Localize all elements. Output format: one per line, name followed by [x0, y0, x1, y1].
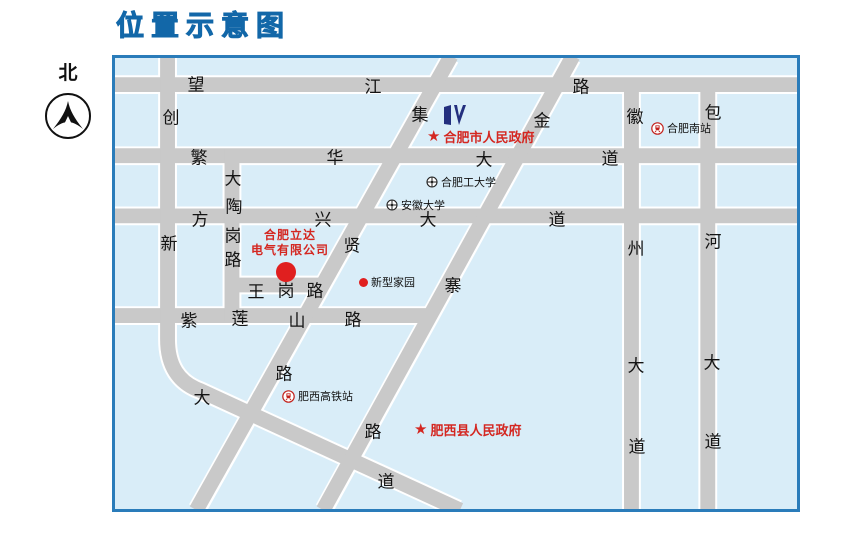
road-label-大陶岗路: 大	[225, 165, 242, 190]
road-label-包河大道: 河	[705, 228, 722, 253]
poi-hefei-south-label: 合肥南站	[667, 120, 711, 136]
road-label-包河大道: 道	[705, 428, 722, 453]
north-label: 北	[40, 58, 96, 85]
road-label-集贤路: 路	[276, 360, 293, 385]
road-label-金寨路: 路	[365, 418, 382, 443]
poi-feixi-station: 肥西高铁站	[282, 388, 353, 404]
star-icon: ★	[414, 422, 427, 437]
university-icon	[426, 176, 438, 188]
poi-feixi-government-label: 肥西县人民政府	[430, 420, 521, 439]
road-label-紫莲山路: 莲	[232, 305, 249, 330]
page: 位置示意图 北	[0, 0, 847, 551]
compass-arrow-icon	[50, 98, 86, 134]
road-label-徽州大道: 大	[628, 352, 645, 377]
road-label-创新大道: 新	[161, 230, 178, 255]
poi-hfut-label: 合肥工大学	[441, 174, 496, 190]
road-label-金寨路: 寨	[445, 272, 462, 297]
poi-hfut: 合肥工大学	[426, 174, 496, 190]
road-label-徽州大道: 州	[628, 235, 645, 260]
road-label-徽州大道: 道	[629, 433, 646, 458]
poi-feixi-station-label: 肥西高铁站	[298, 388, 353, 404]
road-label-创新大道: 道	[378, 468, 395, 493]
road-label-创新大道: 大	[194, 384, 211, 409]
university-icon	[386, 199, 398, 211]
poi-feixi-government: ★ 肥西县人民政府	[414, 420, 521, 439]
company-location-dot	[276, 262, 296, 282]
railway-station-icon	[651, 122, 664, 135]
road-label-方兴大道: 道	[549, 206, 566, 231]
road-label-紫莲山路: 山	[289, 307, 306, 332]
road-label-大陶岗路: 陶	[226, 193, 243, 218]
company-name-line2: 电气有限公司	[233, 243, 347, 258]
road-label-创新大道: 创	[163, 104, 180, 129]
poi-anhui-university: 安徽大学	[386, 197, 445, 213]
poi-anhui-university-label: 安徽大学	[401, 197, 445, 213]
poi-xinxing-homeland: 新型家园	[359, 274, 415, 290]
road-label-繁华大道: 华	[327, 144, 344, 169]
railway-station-icon	[282, 390, 295, 403]
compass-icon	[45, 93, 91, 139]
poi-hefei-south-station: 合肥南站	[651, 120, 711, 136]
poi-city-government: ★ 合肥市人民政府	[427, 127, 534, 146]
road-label-包河大道: 大	[704, 349, 721, 374]
road-label-紫莲山路: 紫	[181, 307, 198, 332]
page-title: 位置示意图	[116, 4, 291, 44]
star-icon: ★	[427, 129, 440, 144]
city-government-logo-icon	[441, 104, 467, 126]
red-dot-icon	[359, 278, 368, 287]
road-label-繁华大道: 道	[602, 145, 619, 170]
road-label-徽州大道: 徽	[627, 103, 644, 128]
road-label-方兴大道: 方	[192, 206, 209, 231]
road-label-繁华大道: 繁	[191, 144, 208, 169]
poi-xinxing-label: 新型家园	[371, 274, 415, 290]
road-label-金寨路: 金	[534, 107, 551, 132]
road-label-繁华大道: 大	[476, 146, 493, 171]
road-label-方兴大道: 兴	[315, 206, 332, 231]
road-label-集贤路: 集	[412, 101, 429, 126]
road-label-望江路: 望	[188, 71, 205, 96]
road-label-王岗路: 路	[307, 277, 324, 302]
road-label-王岗路: 王	[248, 278, 265, 303]
road-label-紫莲山路: 路	[345, 306, 362, 331]
company-name-line1: 合肥立达	[233, 228, 347, 243]
poi-city-government-label: 合肥市人民政府	[443, 127, 534, 146]
north-indicator: 北	[40, 58, 96, 139]
road-label-望江路: 路	[573, 73, 590, 98]
map-canvas: 望江路繁华大道方兴大道王岗路紫莲山路创新大道大陶岗路徽州大道包河大道集贤路金寨路…	[112, 55, 800, 512]
poi-company-label: 合肥立达 电气有限公司	[233, 228, 347, 258]
road-label-望江路: 江	[365, 73, 382, 98]
